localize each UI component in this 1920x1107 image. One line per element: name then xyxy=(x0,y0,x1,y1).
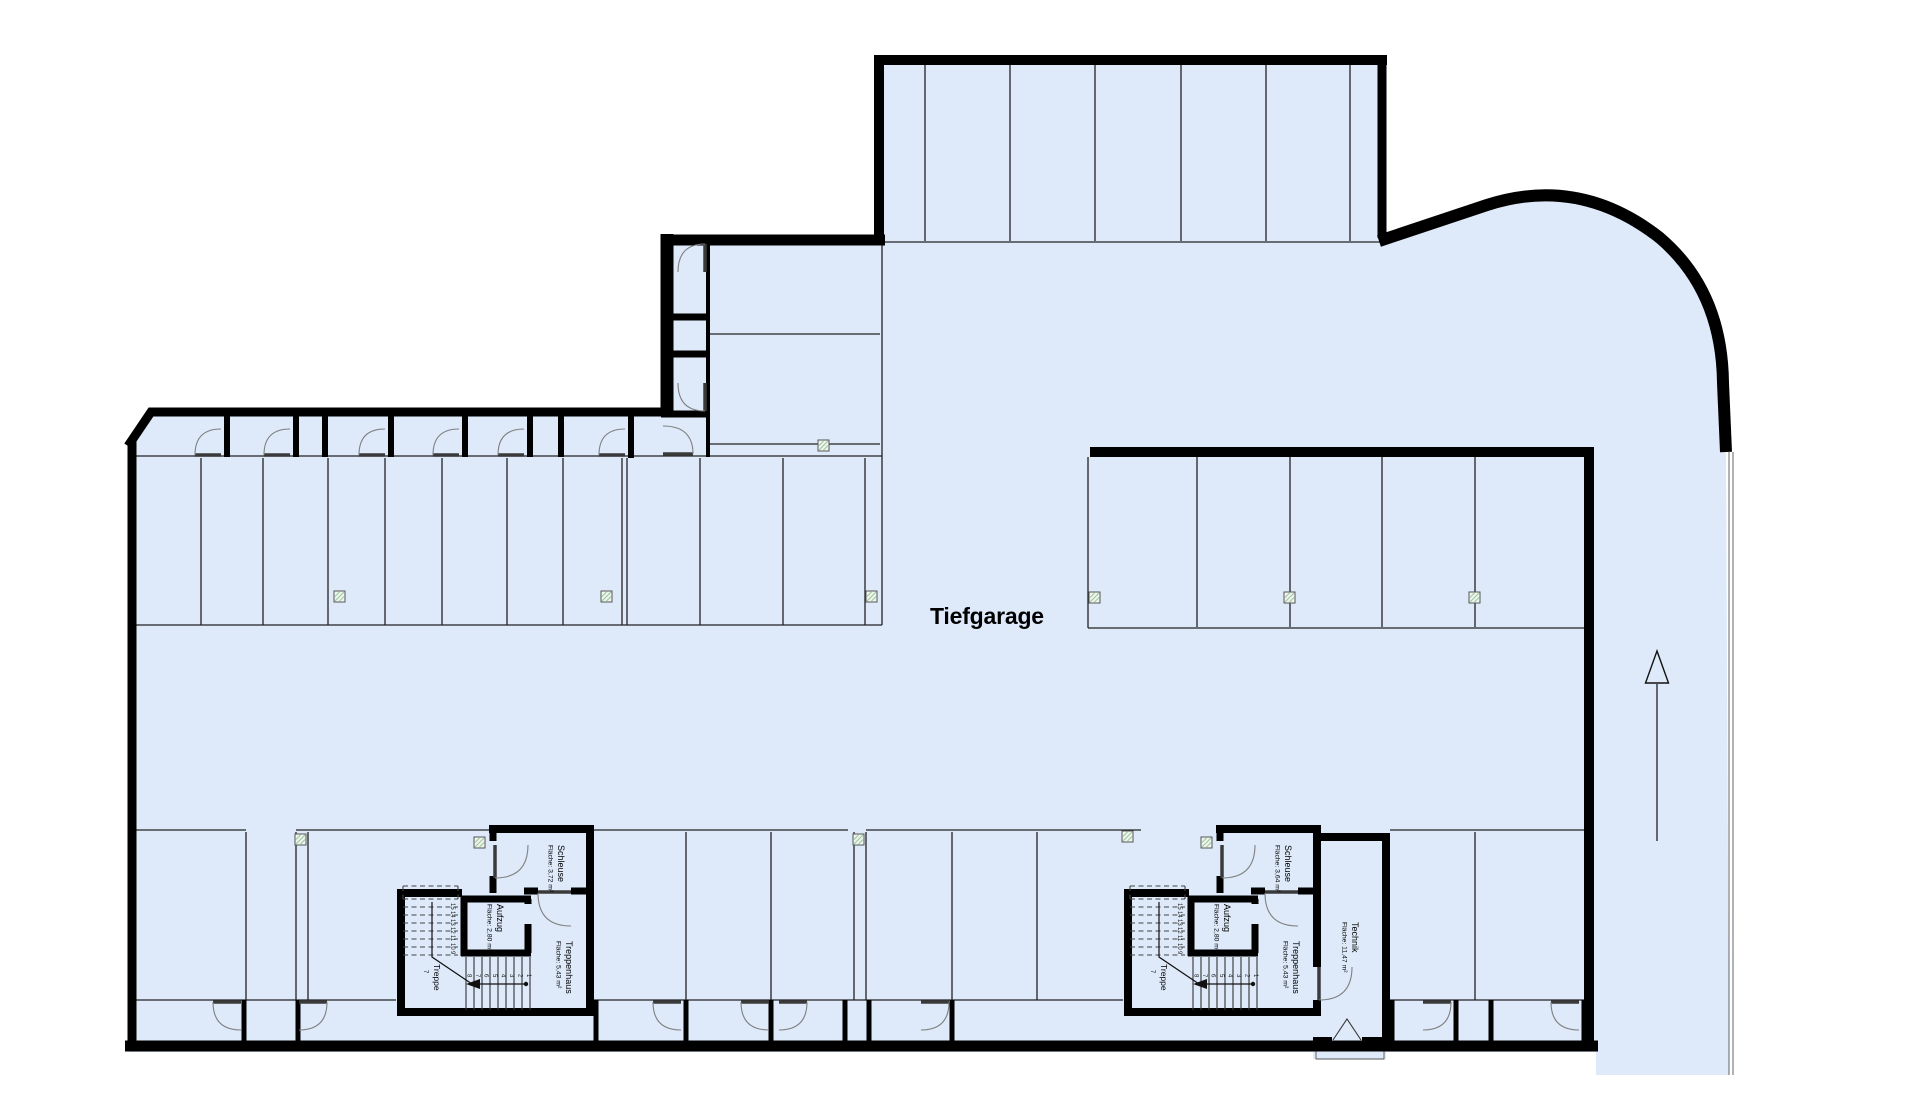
room-name: Technik xyxy=(1350,922,1360,953)
column-icon xyxy=(853,834,864,845)
column-icon xyxy=(1089,592,1100,603)
room-area: Fläche: 2,80 m² xyxy=(486,904,493,952)
treppe-label: Treppe xyxy=(432,964,442,991)
room-name: Schleuse xyxy=(1283,845,1293,882)
column-icon xyxy=(601,591,612,602)
ramp-edge-line xyxy=(1729,452,1733,1075)
column-icon xyxy=(1284,592,1295,603)
room-name: Aufzug xyxy=(495,904,505,932)
column-icon xyxy=(474,837,485,848)
room-area: Fläche: 3,72 m² xyxy=(547,845,554,893)
room-area: Fläche: 3,64 m² xyxy=(1274,845,1281,893)
column-icon xyxy=(1469,592,1480,603)
label-treppenhaus-left: Treppenhaus Fläche: 5,43 m² xyxy=(555,941,575,994)
floorplan-page: 1 2 3 4 5 6 7 8 9 10 11 12 13 14 15 Trep… xyxy=(0,0,1920,1107)
column-icon xyxy=(866,591,877,602)
tread-number: 14 xyxy=(449,911,455,918)
room-area: Fläche: 5,43 m² xyxy=(555,941,562,989)
label-treppenhaus-right: Treppenhaus Fläche: 5,43 m² xyxy=(1282,941,1302,994)
room-name: Aufzug xyxy=(1222,904,1232,932)
tread-number: 12 xyxy=(449,927,455,934)
room-area: Fläche: 2,80 m² xyxy=(1213,904,1220,952)
tread-number: 13 xyxy=(449,919,455,926)
room-area: Fläche: 5,43 m² xyxy=(1282,941,1289,989)
room-area: Fläche: 11,47 m² xyxy=(1341,922,1348,973)
room-name: Treppenhaus xyxy=(564,941,574,994)
column-icon xyxy=(295,834,306,845)
tread-number: 11 xyxy=(449,935,455,942)
tread-number: 10 xyxy=(449,943,455,950)
room-name: Treppenhaus xyxy=(1291,941,1301,994)
tiefgarage-floorplan: 1 2 3 4 5 6 7 8 9 10 11 12 13 14 15 Trep… xyxy=(0,0,1920,1107)
column-icon xyxy=(1122,831,1133,842)
tiefgarage-title: Tiefgarage xyxy=(930,603,1044,629)
column-icon xyxy=(334,591,345,602)
column-icon xyxy=(818,440,829,451)
room-name: Schleuse xyxy=(556,845,566,882)
tread-number: 15 xyxy=(449,903,455,910)
